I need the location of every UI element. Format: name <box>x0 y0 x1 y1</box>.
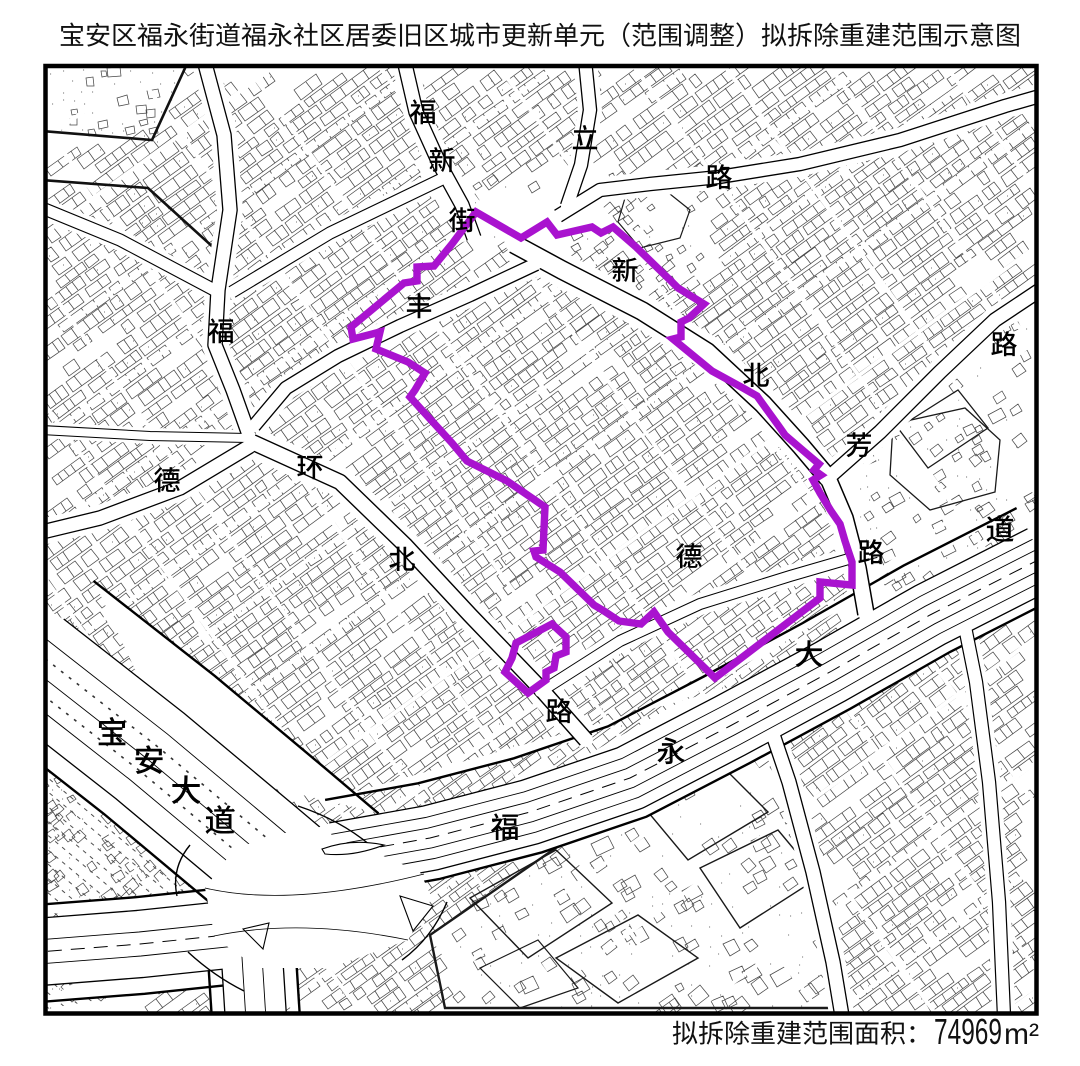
svg-text:74969: 74969 <box>934 1011 1002 1052</box>
svg-text:m²: m² <box>1004 1018 1039 1051</box>
